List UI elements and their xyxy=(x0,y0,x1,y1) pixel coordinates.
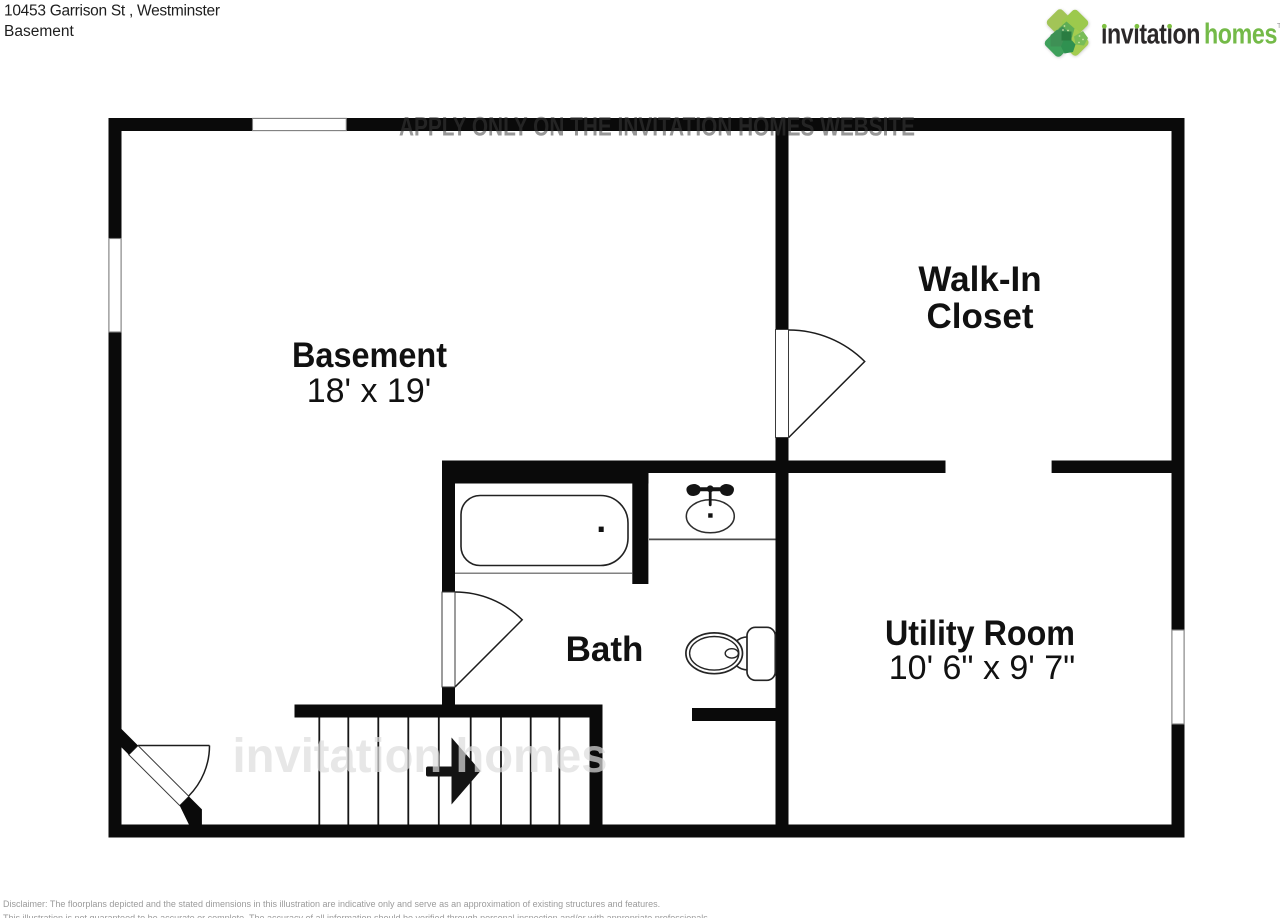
svg-text:homes: homes xyxy=(1204,19,1277,51)
svg-text:Disclaimer: The floorplans dep: Disclaimer: The floorplans depicted and … xyxy=(3,899,660,909)
svg-text:Closet: Closet xyxy=(927,297,1034,336)
svg-text:ınvıtatıon: ınvıtatıon xyxy=(1101,19,1200,51)
svg-text:invitation homes: invitation homes xyxy=(233,730,608,783)
svg-text:Walk-In: Walk-In xyxy=(918,260,1041,299)
svg-text:18' x 19': 18' x 19' xyxy=(307,372,432,410)
svg-text:Basement: Basement xyxy=(292,336,447,375)
svg-text:Basement: Basement xyxy=(4,23,74,40)
svg-text:10453 Garrison St , Westminste: 10453 Garrison St , Westminster xyxy=(4,3,220,20)
svg-text:APPLY ONLY ON THE INVITATION H: APPLY ONLY ON THE INVITATION HOMES WEBSI… xyxy=(399,112,915,142)
svg-text:Bath: Bath xyxy=(566,630,644,669)
svg-text:This illustration is not guara: This illustration is not guaranteed to b… xyxy=(3,913,710,918)
svg-text:Utility Room: Utility Room xyxy=(885,614,1075,653)
svg-text:10' 6" x 9' 7": 10' 6" x 9' 7" xyxy=(889,649,1075,687)
